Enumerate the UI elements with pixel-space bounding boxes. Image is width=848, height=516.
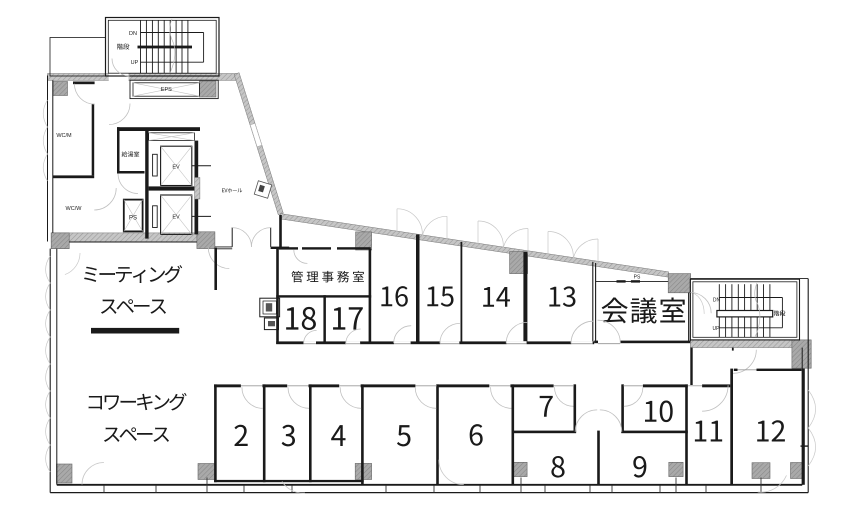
svg-text:UP: UP [131, 60, 139, 66]
svg-text:EPS: EPS [161, 87, 172, 93]
svg-text:PS: PS [634, 275, 641, 281]
svg-text:WC/W: WC/W [66, 206, 83, 212]
svg-text:EV: EV [172, 215, 180, 221]
svg-text:UP: UP [713, 326, 721, 332]
svg-text:EV: EV [172, 165, 180, 171]
svg-text:PS: PS [129, 216, 137, 222]
svg-text:DN: DN [713, 298, 721, 304]
svg-text:WC/M: WC/M [56, 133, 72, 139]
svg-text:DN: DN [129, 31, 137, 37]
